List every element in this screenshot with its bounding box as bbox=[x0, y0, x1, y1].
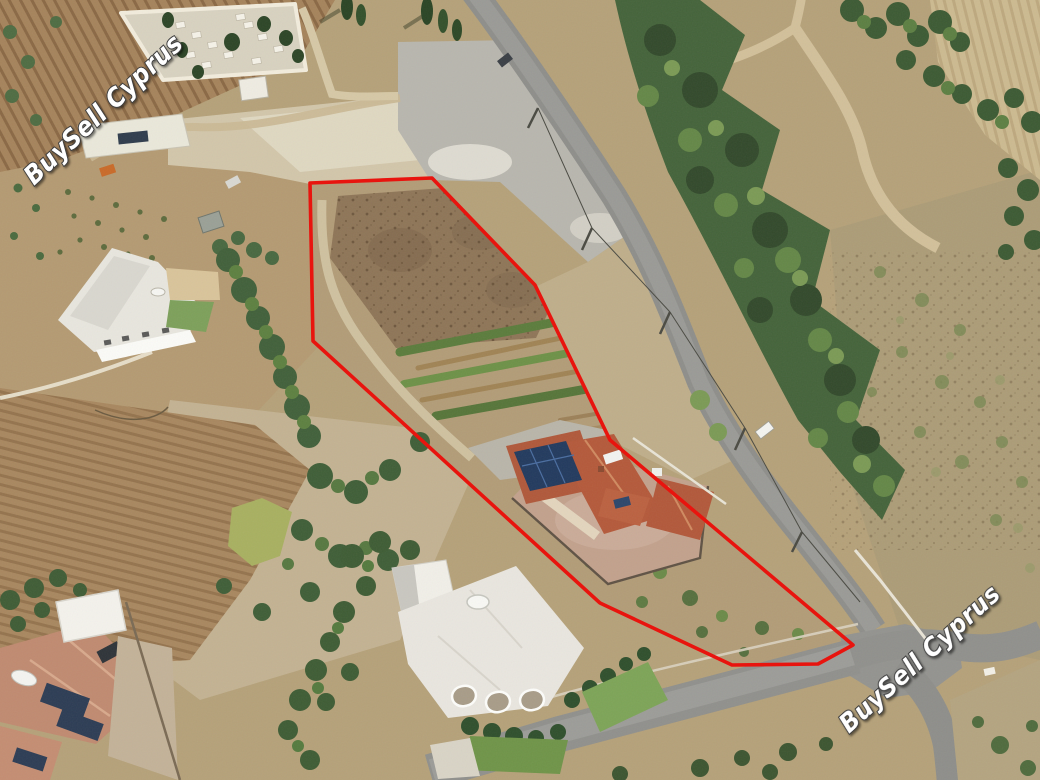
aerial-photo: BuySell Cyprus BuySell Cyprus bbox=[0, 0, 1040, 780]
photo-grain bbox=[0, 0, 1040, 780]
aerial-photo-view: BuySell Cyprus BuySell Cyprus bbox=[0, 0, 1040, 780]
